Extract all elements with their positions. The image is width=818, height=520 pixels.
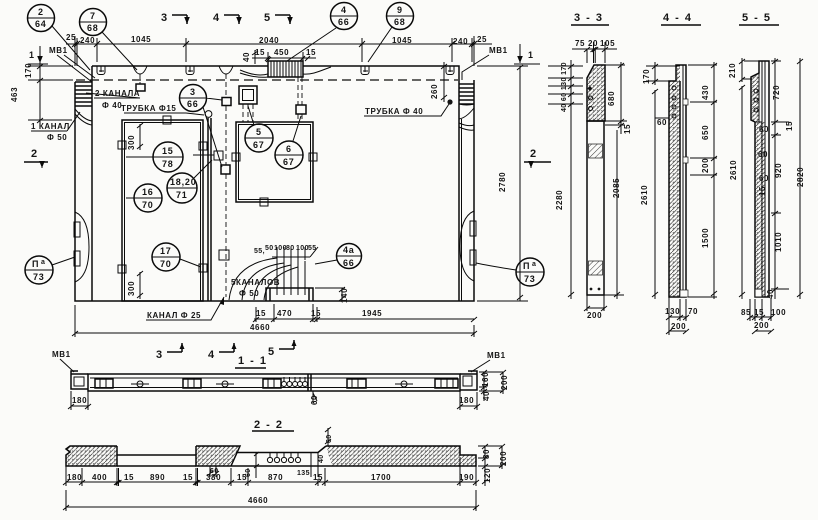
svg-text:60: 60 xyxy=(758,150,768,159)
svg-text:135: 135 xyxy=(297,470,310,477)
svg-text:200: 200 xyxy=(754,321,769,330)
svg-text:40 60 130 170: 40 60 130 170 xyxy=(561,62,568,112)
svg-text:70: 70 xyxy=(142,200,154,210)
svg-text:300: 300 xyxy=(127,281,136,296)
svg-text:2280: 2280 xyxy=(555,190,564,210)
svg-text:5 - 5: 5 - 5 xyxy=(742,12,772,24)
svg-text:15: 15 xyxy=(256,309,266,318)
svg-text:450: 450 xyxy=(274,48,289,57)
svg-text:1: 1 xyxy=(528,50,534,60)
svg-text:130: 130 xyxy=(665,307,680,316)
svg-text:15: 15 xyxy=(162,146,174,156)
svg-text:1045: 1045 xyxy=(392,36,412,45)
svg-text:4 - 4: 4 - 4 xyxy=(663,12,693,24)
svg-text:890: 890 xyxy=(150,473,165,482)
svg-text:170: 170 xyxy=(642,69,651,84)
svg-text:ТРУБКА Ф 40: ТРУБКА Ф 40 xyxy=(365,107,423,116)
svg-text:68: 68 xyxy=(87,23,99,33)
svg-text:78: 78 xyxy=(162,159,174,169)
svg-text:МВ1: МВ1 xyxy=(487,351,506,360)
svg-text:1010: 1010 xyxy=(774,232,783,252)
svg-text:100: 100 xyxy=(296,245,309,252)
svg-text:680: 680 xyxy=(607,91,616,106)
svg-text:73: 73 xyxy=(33,272,45,282)
svg-text:5КАНАЛОВ: 5КАНАЛОВ xyxy=(231,278,280,287)
svg-text:2040: 2040 xyxy=(259,36,279,45)
svg-text:17: 17 xyxy=(160,246,172,256)
svg-text:2: 2 xyxy=(38,7,44,17)
svg-text:200: 200 xyxy=(500,375,509,390)
svg-text:50: 50 xyxy=(265,245,274,252)
svg-text:100: 100 xyxy=(771,308,786,317)
svg-text:5: 5 xyxy=(256,127,262,137)
svg-text:1 КАНАЛ: 1 КАНАЛ xyxy=(31,122,70,131)
svg-text:П: П xyxy=(523,261,530,271)
svg-text:2 КАНАЛА: 2 КАНАЛА xyxy=(95,89,140,98)
svg-text:1700: 1700 xyxy=(371,473,391,482)
svg-text:55,: 55, xyxy=(254,248,265,255)
svg-text:4а: 4а xyxy=(343,245,355,255)
svg-text:300: 300 xyxy=(127,135,136,150)
svg-text:4660: 4660 xyxy=(248,496,268,505)
svg-text:80: 80 xyxy=(482,449,491,459)
svg-text:5: 5 xyxy=(268,346,276,358)
svg-text:70: 70 xyxy=(160,259,172,269)
svg-text:15: 15 xyxy=(306,48,316,57)
svg-text:МВ1: МВ1 xyxy=(49,46,68,55)
svg-text:П: П xyxy=(32,259,39,269)
svg-text:1045: 1045 xyxy=(131,35,151,44)
svg-text:18,20: 18,20 xyxy=(170,177,197,187)
svg-text:64: 64 xyxy=(35,19,47,29)
svg-text:870: 870 xyxy=(268,473,283,482)
svg-text:а: а xyxy=(532,261,536,268)
svg-text:260: 260 xyxy=(430,84,439,99)
svg-text:920: 920 xyxy=(774,163,783,178)
svg-text:4: 4 xyxy=(341,5,347,15)
svg-text:40: 40 xyxy=(482,391,491,401)
svg-text:380: 380 xyxy=(206,473,221,482)
svg-text:55: 55 xyxy=(308,245,317,252)
svg-text:40: 40 xyxy=(242,52,251,62)
svg-text:5: 5 xyxy=(264,12,272,24)
svg-text:Ф 50: Ф 50 xyxy=(239,289,259,298)
svg-text:71: 71 xyxy=(176,190,188,200)
svg-text:6: 6 xyxy=(286,144,292,154)
svg-text:60: 60 xyxy=(657,118,667,127)
svg-text:170: 170 xyxy=(24,63,33,78)
svg-text:3: 3 xyxy=(190,87,196,97)
svg-text:400: 400 xyxy=(92,473,107,482)
svg-text:Ф 50: Ф 50 xyxy=(47,133,67,142)
svg-text:100: 100 xyxy=(274,245,287,252)
svg-text:470: 470 xyxy=(277,309,292,318)
svg-text:15: 15 xyxy=(758,186,767,196)
svg-text:15: 15 xyxy=(313,473,323,482)
svg-text:1 - 1: 1 - 1 xyxy=(238,355,268,367)
svg-text:7: 7 xyxy=(90,11,96,21)
svg-text:2780: 2780 xyxy=(498,172,507,192)
svg-text:68: 68 xyxy=(394,17,406,27)
svg-text:210: 210 xyxy=(728,63,737,78)
svg-text:4660: 4660 xyxy=(250,323,270,332)
svg-text:1945: 1945 xyxy=(362,309,382,318)
svg-text:180: 180 xyxy=(67,473,82,482)
svg-text:25: 25 xyxy=(477,35,487,44)
svg-text:105: 105 xyxy=(600,39,615,48)
svg-text:720: 720 xyxy=(772,85,781,100)
svg-text:3: 3 xyxy=(161,12,169,24)
svg-text:40: 40 xyxy=(766,289,775,299)
svg-text:3: 3 xyxy=(156,349,164,361)
svg-text:1500: 1500 xyxy=(701,228,710,248)
svg-text:60: 60 xyxy=(310,395,319,405)
svg-text:Ф 40: Ф 40 xyxy=(102,101,122,110)
svg-text:1: 1 xyxy=(29,50,35,60)
svg-text:МВ1: МВ1 xyxy=(52,350,71,359)
svg-text:2085: 2085 xyxy=(612,178,621,198)
svg-text:67: 67 xyxy=(253,140,265,150)
svg-text:66: 66 xyxy=(338,17,350,27)
svg-text:3 - 3: 3 - 3 xyxy=(574,12,604,24)
svg-text:180: 180 xyxy=(459,396,474,405)
svg-text:40: 40 xyxy=(318,454,325,463)
svg-text:2820: 2820 xyxy=(796,167,805,187)
svg-text:ТРУБКА Ф15: ТРУБКА Ф15 xyxy=(121,104,176,113)
svg-text:16: 16 xyxy=(142,187,154,197)
svg-text:75: 75 xyxy=(575,39,585,48)
svg-text:4: 4 xyxy=(208,349,216,361)
svg-text:КАНАЛ Ф 25: КАНАЛ Ф 25 xyxy=(147,311,201,320)
svg-text:200: 200 xyxy=(587,311,602,320)
svg-text:60: 60 xyxy=(759,125,769,134)
svg-text:15: 15 xyxy=(311,309,321,318)
svg-text:2610: 2610 xyxy=(640,185,649,205)
svg-text:180: 180 xyxy=(72,396,87,405)
svg-text:67: 67 xyxy=(283,157,295,167)
svg-text:а: а xyxy=(41,259,45,266)
svg-text:15: 15 xyxy=(124,473,134,482)
svg-text:66: 66 xyxy=(187,99,199,109)
svg-text:240: 240 xyxy=(80,36,95,45)
svg-text:200: 200 xyxy=(671,322,686,331)
svg-text:60: 60 xyxy=(759,174,769,183)
svg-text:200: 200 xyxy=(701,158,710,173)
svg-text:2 - 2: 2 - 2 xyxy=(254,419,284,431)
svg-text:2: 2 xyxy=(530,148,538,160)
svg-text:15: 15 xyxy=(754,308,764,317)
svg-text:2610: 2610 xyxy=(729,160,738,180)
svg-text:120: 120 xyxy=(483,468,492,483)
svg-text:73: 73 xyxy=(524,274,536,284)
svg-text:140: 140 xyxy=(340,288,349,303)
svg-text:МВ1: МВ1 xyxy=(489,46,508,55)
svg-text:66: 66 xyxy=(343,258,355,268)
svg-text:70: 70 xyxy=(688,307,698,316)
svg-text:25: 25 xyxy=(66,33,76,42)
svg-text:2: 2 xyxy=(31,148,39,160)
svg-text:15: 15 xyxy=(623,124,632,134)
svg-text:80: 80 xyxy=(286,245,295,252)
svg-text:9: 9 xyxy=(397,5,403,15)
svg-text:15: 15 xyxy=(237,473,247,482)
svg-text:15: 15 xyxy=(183,473,193,482)
svg-text:160: 160 xyxy=(481,372,490,387)
svg-text:463: 463 xyxy=(10,87,19,102)
svg-text:240: 240 xyxy=(453,37,468,46)
svg-text:650: 650 xyxy=(701,125,710,140)
svg-text:4: 4 xyxy=(213,12,221,24)
svg-text:190: 190 xyxy=(459,473,474,482)
svg-text:430: 430 xyxy=(701,85,710,100)
svg-text:85: 85 xyxy=(741,308,751,317)
svg-text:200: 200 xyxy=(499,451,508,466)
